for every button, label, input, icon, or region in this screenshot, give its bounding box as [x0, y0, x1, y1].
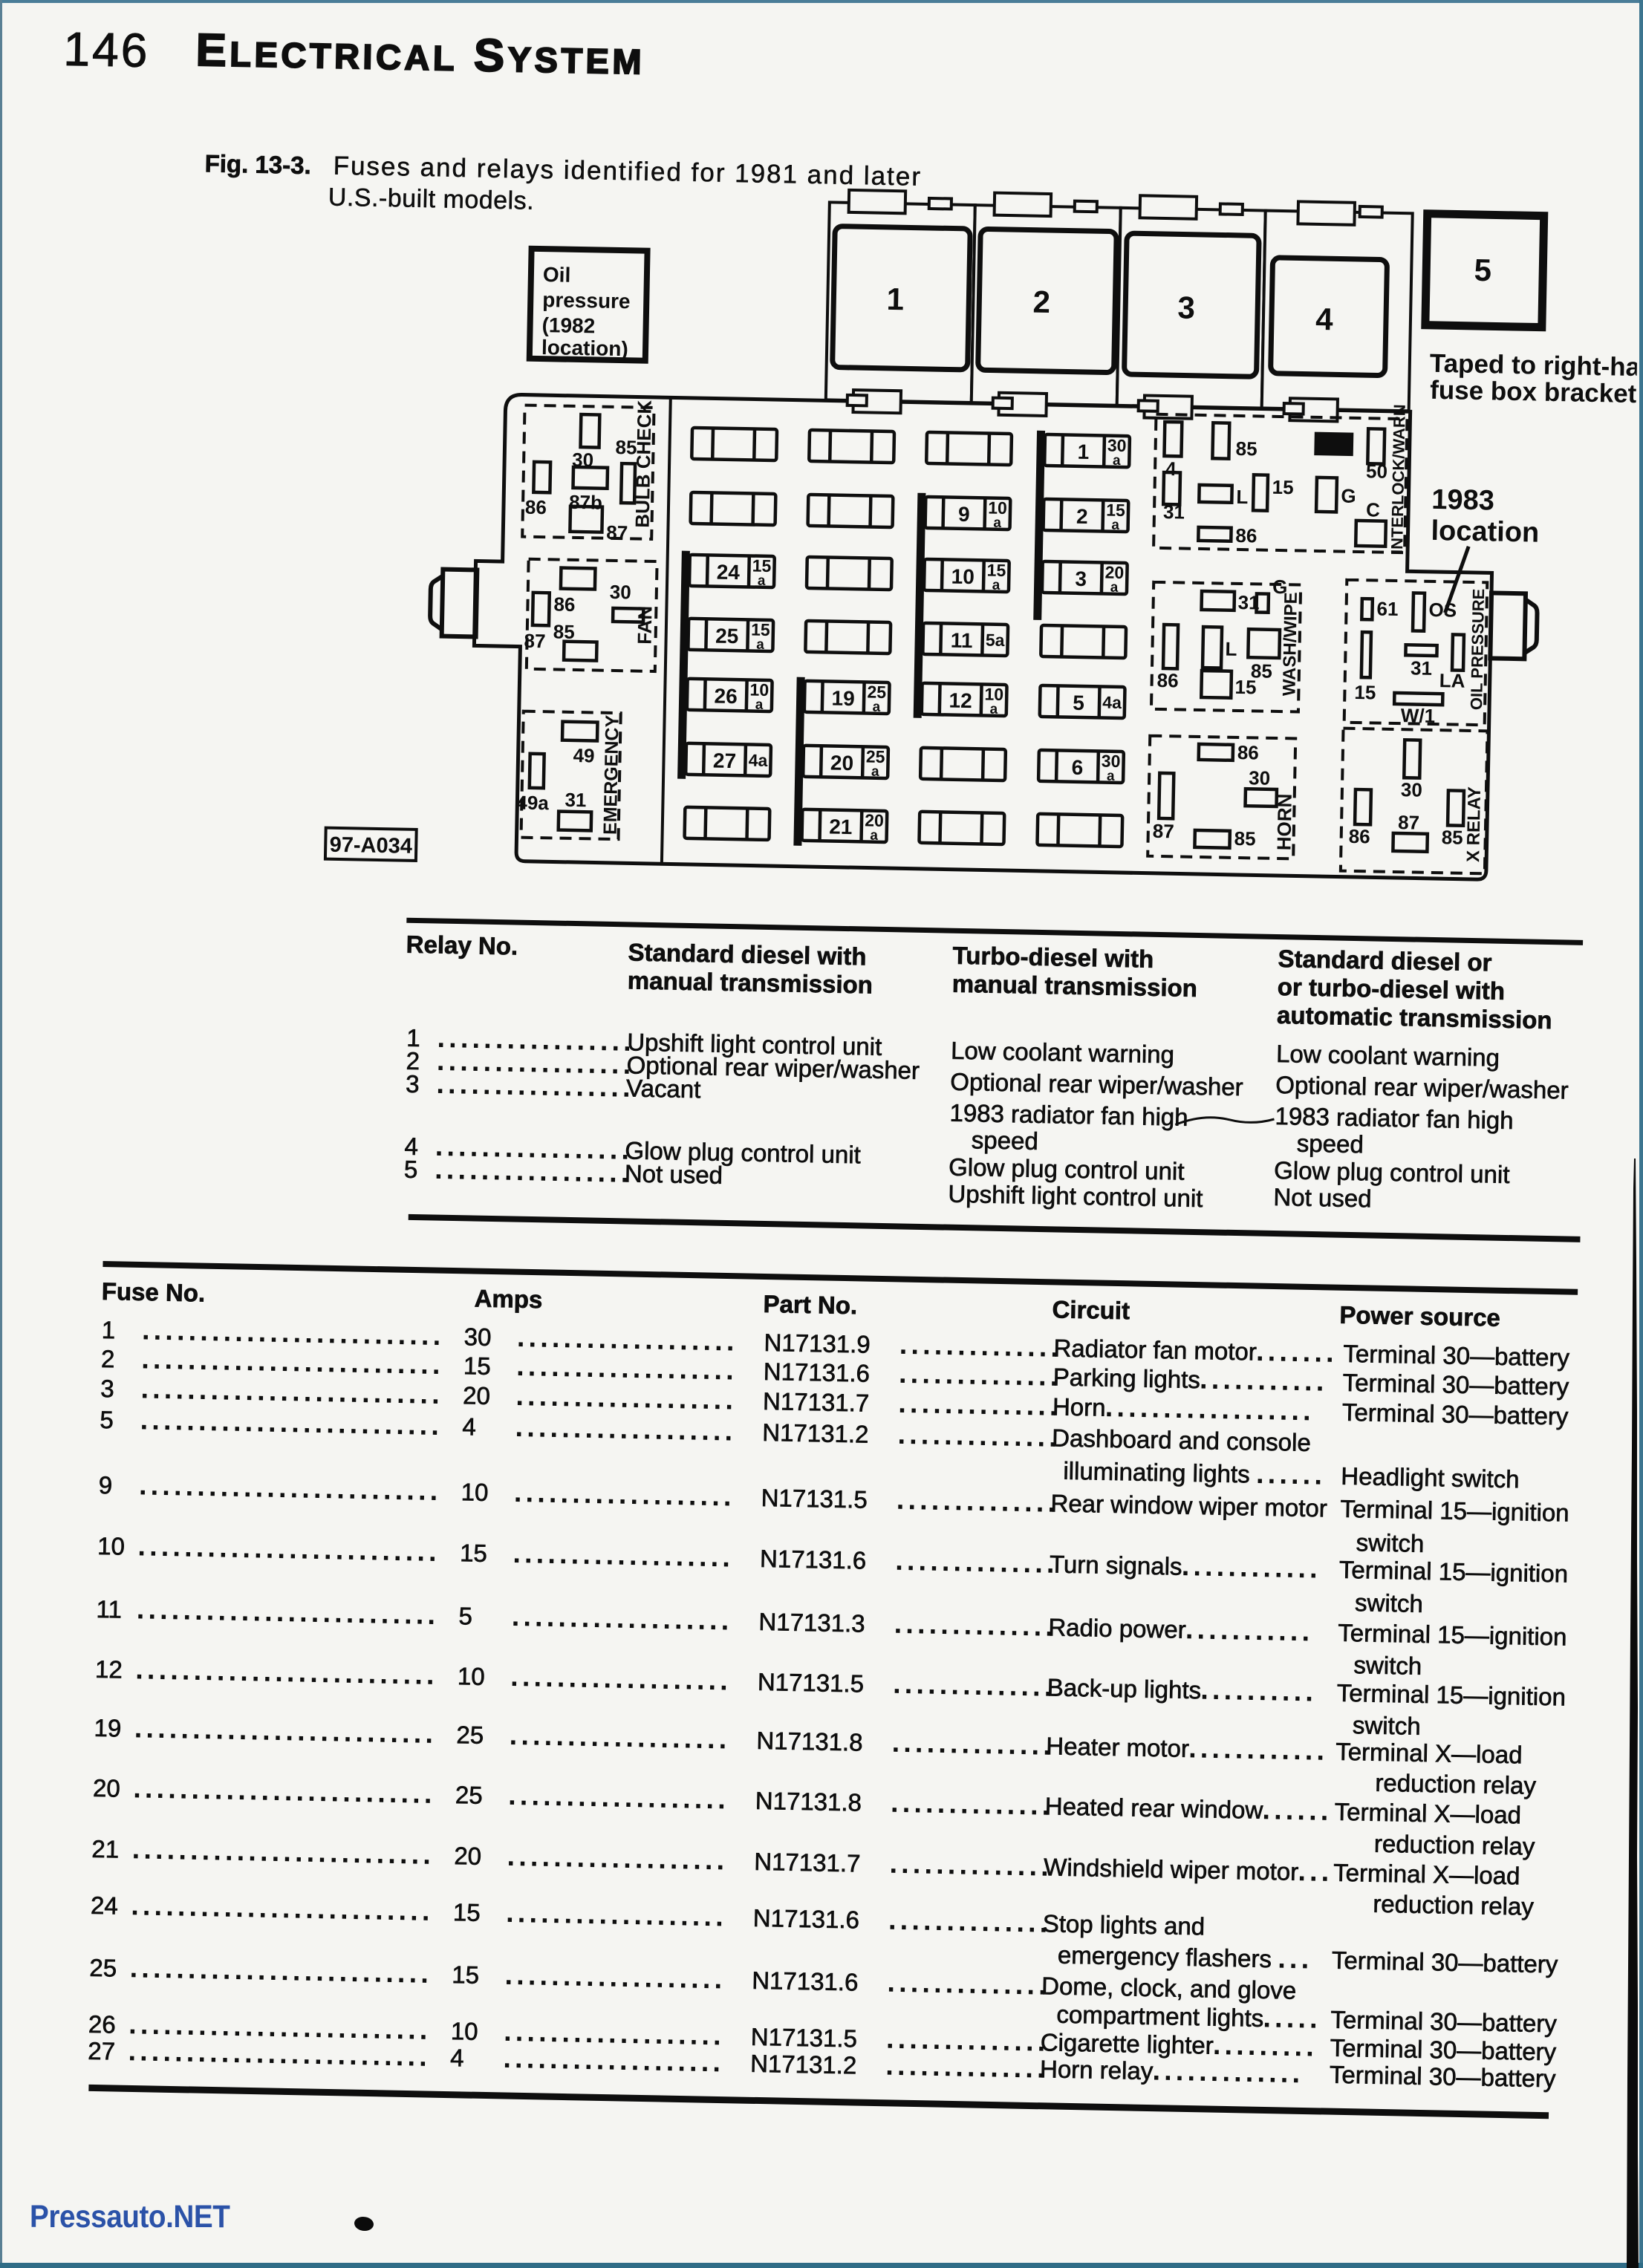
- svg-text:50: 50: [1366, 460, 1387, 483]
- svg-text:10: 10: [951, 565, 975, 589]
- svg-text:9: 9: [958, 503, 970, 526]
- svg-text:61: 61: [1376, 598, 1398, 621]
- svg-text:5: 5: [1474, 252, 1491, 287]
- svg-text:a: a: [1113, 453, 1121, 469]
- svg-text:86: 86: [1235, 524, 1257, 547]
- svg-text:4a: 4a: [749, 750, 768, 769]
- svg-text:1: 1: [886, 281, 904, 316]
- svg-text:(1982: (1982: [541, 313, 595, 337]
- svg-text:3: 3: [1075, 567, 1087, 590]
- svg-text:G: G: [1341, 485, 1356, 507]
- svg-text:Oil: Oil: [543, 263, 571, 287]
- svg-text:11: 11: [951, 629, 973, 653]
- svg-text:OIL PRESSURE: OIL PRESSURE: [1467, 588, 1488, 710]
- svg-text:LA: LA: [1439, 669, 1465, 692]
- svg-text:86: 86: [1237, 741, 1259, 764]
- svg-text:pressure: pressure: [542, 288, 631, 313]
- svg-text:1: 1: [1077, 440, 1089, 463]
- svg-text:5a: 5a: [986, 630, 1005, 649]
- svg-text:87: 87: [1398, 811, 1419, 834]
- svg-text:a: a: [993, 515, 1001, 531]
- svg-text:19: 19: [831, 687, 855, 711]
- svg-text:C: C: [1366, 498, 1381, 521]
- svg-text:location: location: [1431, 515, 1539, 549]
- svg-text:21: 21: [829, 815, 853, 839]
- svg-text:20: 20: [830, 752, 854, 775]
- svg-text:a: a: [992, 578, 1001, 593]
- svg-text:location): location): [541, 336, 628, 360]
- svg-text:30: 30: [1401, 778, 1422, 801]
- svg-text:25: 25: [715, 625, 739, 648]
- svg-text:24: 24: [716, 561, 740, 584]
- svg-text:86: 86: [1348, 825, 1370, 848]
- svg-text:4: 4: [1315, 302, 1334, 336]
- svg-text:3: 3: [1177, 290, 1195, 325]
- svg-text:fuse box bracket: fuse box bracket: [1430, 376, 1637, 408]
- svg-text:a: a: [756, 637, 764, 653]
- svg-text:85: 85: [1234, 827, 1255, 850]
- svg-text:a: a: [1111, 518, 1119, 533]
- svg-text:a: a: [870, 828, 878, 844]
- svg-text:a: a: [871, 764, 879, 780]
- svg-text:31: 31: [1411, 656, 1432, 680]
- svg-text:27: 27: [713, 749, 737, 773]
- svg-text:49a: 49a: [516, 792, 549, 815]
- svg-text:85: 85: [1235, 437, 1257, 460]
- svg-text:26: 26: [714, 685, 738, 708]
- svg-text:85: 85: [1441, 826, 1463, 849]
- svg-text:86: 86: [1156, 669, 1178, 692]
- svg-text:2: 2: [1032, 284, 1050, 319]
- svg-text:a: a: [758, 573, 766, 589]
- svg-text:15: 15: [1354, 681, 1376, 704]
- svg-text:L: L: [1225, 638, 1237, 660]
- svg-text:OS: OS: [1428, 599, 1457, 622]
- svg-text:87: 87: [606, 521, 628, 544]
- svg-text:W/1: W/1: [1401, 704, 1436, 727]
- svg-text:86: 86: [553, 593, 575, 616]
- svg-text:30: 30: [610, 581, 631, 604]
- svg-text:a: a: [989, 702, 998, 717]
- svg-text:a: a: [1110, 580, 1119, 596]
- svg-text:EMERGENCY: EMERGENCY: [600, 714, 623, 835]
- svg-text:4a: 4a: [1102, 692, 1122, 711]
- svg-text:87b: 87b: [569, 491, 602, 514]
- svg-text:87: 87: [1153, 820, 1174, 843]
- svg-text:L: L: [1236, 486, 1249, 508]
- svg-text:a: a: [755, 697, 763, 713]
- svg-text:a: a: [1107, 769, 1115, 784]
- svg-text:85: 85: [553, 620, 575, 643]
- svg-text:97-A034: 97-A034: [329, 833, 412, 858]
- svg-text:12: 12: [949, 689, 972, 713]
- svg-text:49: 49: [573, 744, 594, 767]
- svg-text:15: 15: [1272, 476, 1293, 499]
- svg-text:30: 30: [1249, 766, 1270, 789]
- svg-text:86: 86: [525, 496, 547, 519]
- svg-text:31: 31: [565, 789, 586, 812]
- svg-text:5: 5: [1073, 691, 1084, 714]
- svg-text:31: 31: [1163, 501, 1185, 524]
- svg-text:a: a: [872, 700, 880, 715]
- svg-text:87: 87: [524, 630, 545, 653]
- svg-text:1983: 1983: [1431, 484, 1494, 517]
- svg-text:WASH/WIPE: WASH/WIPE: [1279, 592, 1301, 697]
- svg-text:INTERLOCK/WARN: INTERLOCK/WARN: [1387, 404, 1409, 554]
- svg-text:6: 6: [1071, 756, 1083, 779]
- svg-text:FAN: FAN: [633, 605, 656, 645]
- svg-text:15: 15: [1234, 676, 1256, 699]
- svg-text:BULB CHECK: BULB CHECK: [631, 400, 655, 528]
- svg-text:X RELAY: X RELAY: [1463, 786, 1485, 862]
- svg-text:2: 2: [1076, 505, 1088, 528]
- svg-text:HORN: HORN: [1272, 793, 1295, 850]
- svg-text:4: 4: [1165, 457, 1177, 480]
